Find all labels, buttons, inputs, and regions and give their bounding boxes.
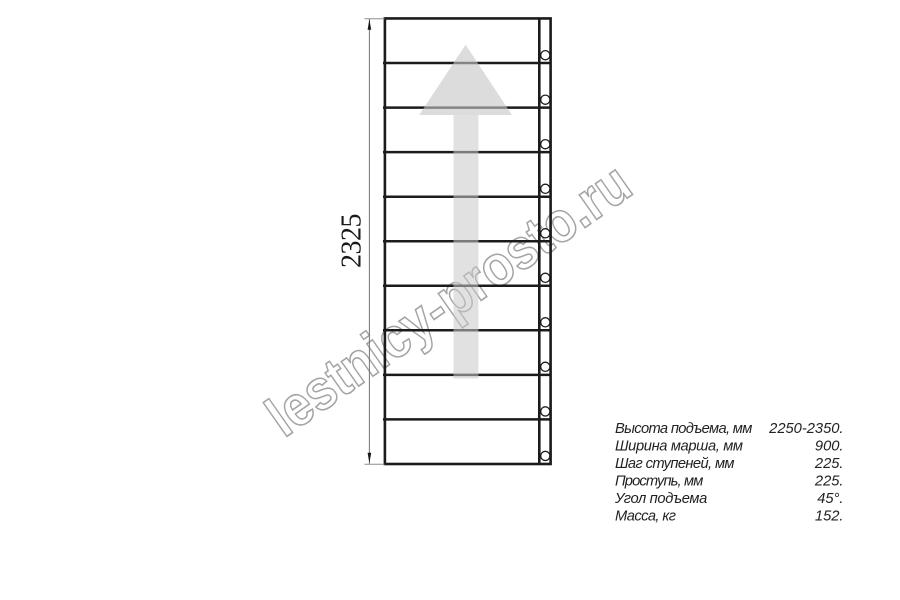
- svg-text:Угол подъема: Угол подъема: [614, 491, 707, 507]
- svg-text:Шаг ступеней, мм: Шаг ступеней, мм: [615, 456, 735, 472]
- svg-text:Проступь, мм: Проступь, мм: [615, 474, 703, 490]
- svg-text:225.: 225.: [814, 456, 844, 472]
- svg-text:2250-2350.: 2250-2350.: [768, 421, 843, 437]
- svg-text:45°.: 45°.: [817, 491, 843, 507]
- svg-text:Масса, кг: Масса, кг: [615, 509, 676, 525]
- svg-text:152.: 152.: [815, 509, 844, 525]
- svg-text:Ширина марша, мм: Ширина марша, мм: [615, 439, 743, 455]
- svg-text:225.: 225.: [814, 474, 844, 490]
- svg-text:2325: 2325: [337, 214, 368, 268]
- svg-text:900.: 900.: [815, 439, 844, 455]
- svg-text:Высота подъема, мм: Высота подъема, мм: [615, 421, 752, 437]
